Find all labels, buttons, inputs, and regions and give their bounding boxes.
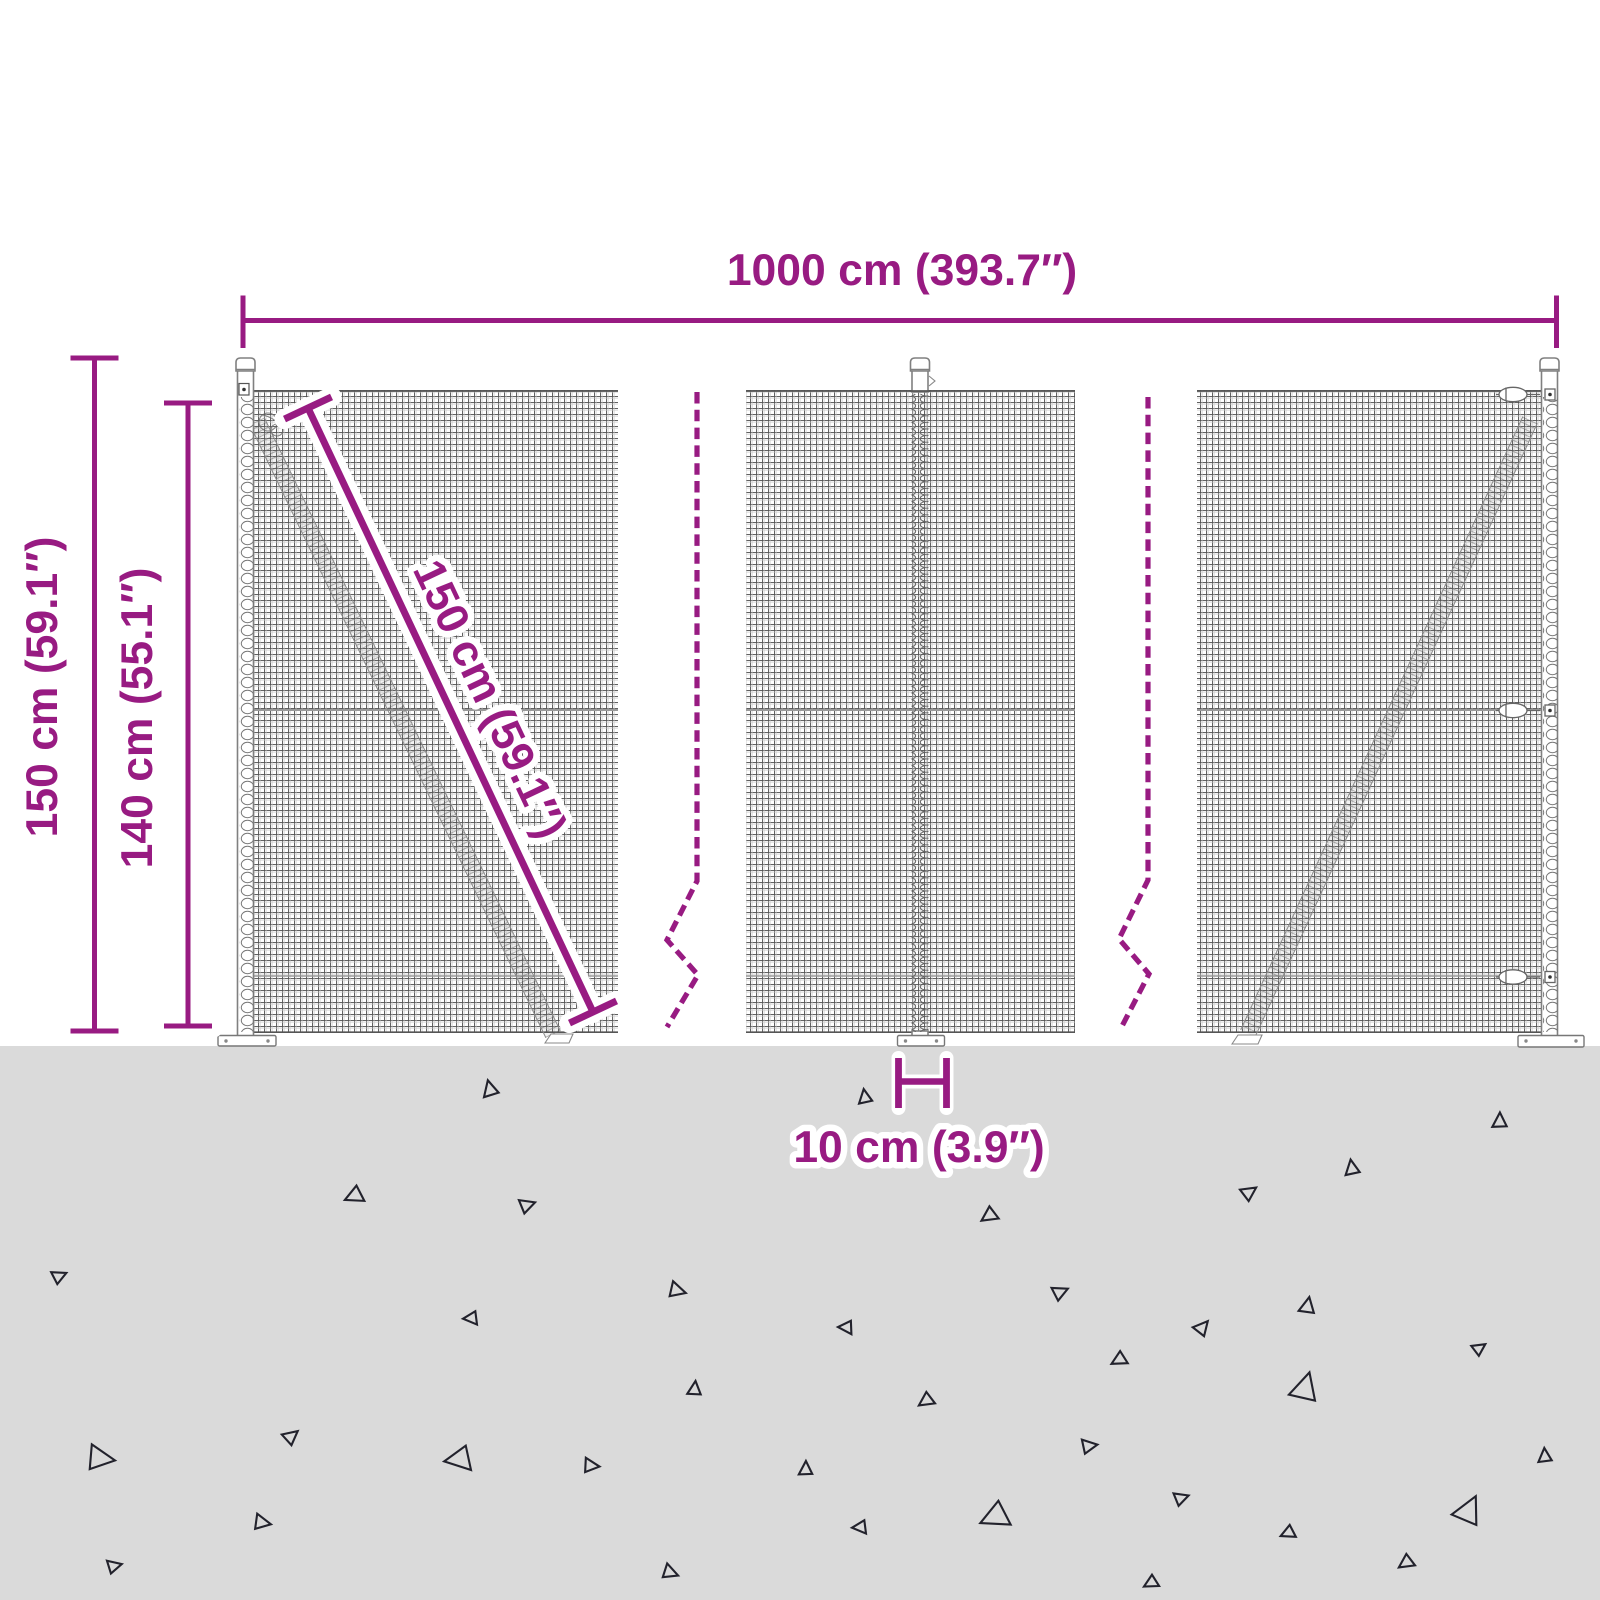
svg-text:1000 cm (393.7″): 1000 cm (393.7″) <box>727 246 1077 295</box>
svg-text:10 cm (3.9″): 10 cm (3.9″) <box>793 1123 1044 1172</box>
svg-text:150 cm (59.1″): 150 cm (59.1″) <box>18 537 67 838</box>
svg-text:140 cm (55.1″): 140 cm (55.1″) <box>113 568 162 869</box>
